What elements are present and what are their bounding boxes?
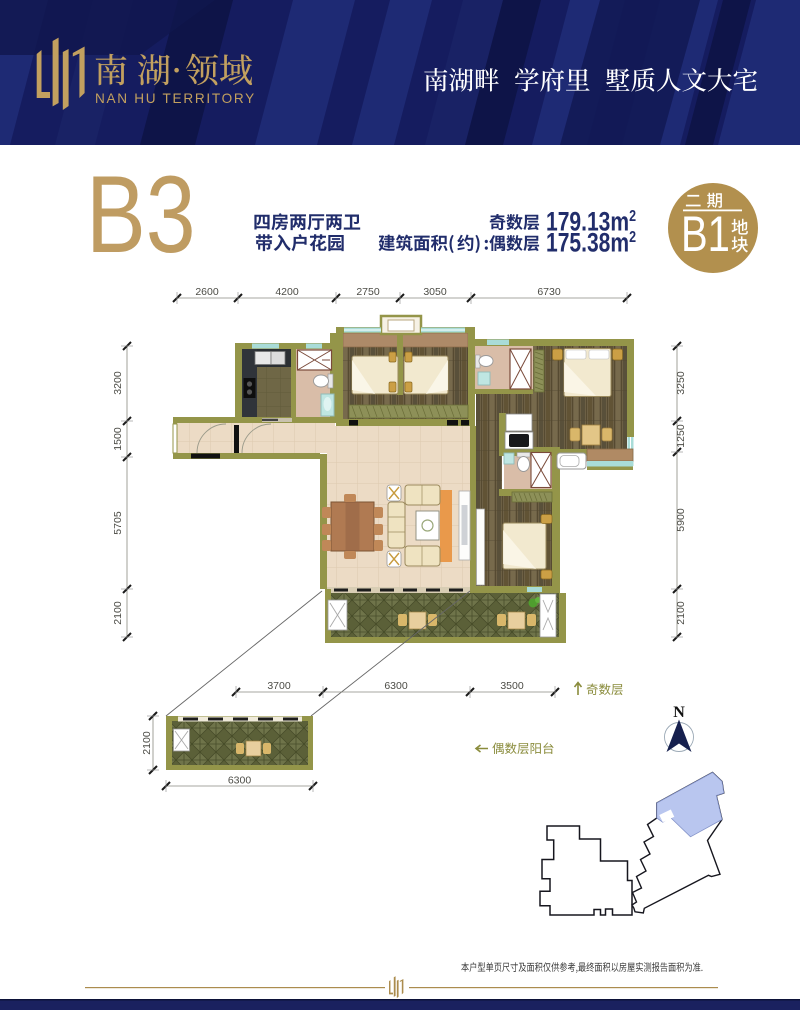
svg-text:B1: B1 <box>681 206 730 262</box>
svg-text:2750: 2750 <box>356 286 380 298</box>
svg-text:6300: 6300 <box>384 680 408 692</box>
svg-text:1500: 1500 <box>112 427 124 451</box>
svg-text:3500: 3500 <box>500 680 524 692</box>
svg-text:1250: 1250 <box>675 424 687 448</box>
svg-text:2100: 2100 <box>112 601 124 625</box>
svg-text:3200: 3200 <box>112 371 124 395</box>
svg-text:6300: 6300 <box>228 775 252 787</box>
svg-text:175.38m: 175.38m <box>546 228 629 258</box>
svg-text:6730: 6730 <box>537 286 561 298</box>
svg-text:2100: 2100 <box>141 731 153 755</box>
svg-text:5705: 5705 <box>112 511 124 535</box>
svg-text:3700: 3700 <box>267 680 291 692</box>
svg-text:5900: 5900 <box>675 508 687 532</box>
svg-text:N: N <box>673 704 685 721</box>
svg-text:3250: 3250 <box>675 371 687 395</box>
svg-text:2: 2 <box>629 208 636 226</box>
svg-text:B3: B3 <box>86 153 196 276</box>
svg-text:4200: 4200 <box>275 286 299 298</box>
svg-text:2: 2 <box>629 229 636 247</box>
svg-text:2100: 2100 <box>675 601 687 625</box>
svg-text:3050: 3050 <box>423 286 447 298</box>
svg-text:NAN HU TERRITORY: NAN HU TERRITORY <box>95 91 256 106</box>
svg-text:2600: 2600 <box>195 286 219 298</box>
